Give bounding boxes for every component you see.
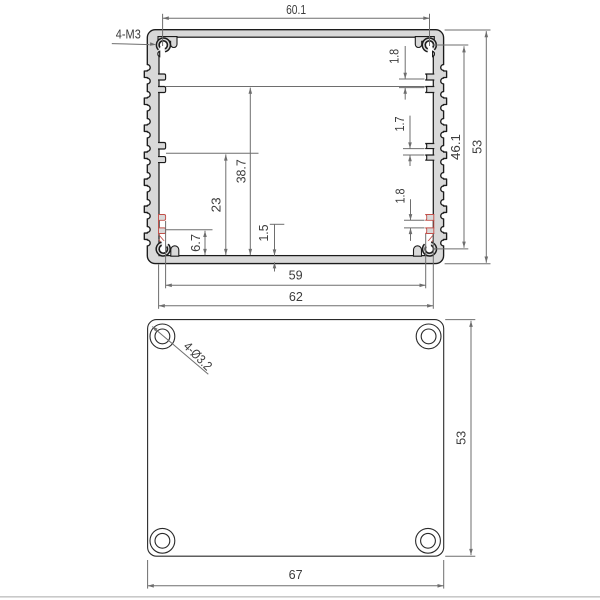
svg-text:1.8: 1.8 bbox=[393, 189, 408, 204]
svg-text:6.7: 6.7 bbox=[188, 234, 203, 252]
svg-text:46.1: 46.1 bbox=[448, 134, 463, 160]
svg-text:38.7: 38.7 bbox=[233, 159, 248, 183]
svg-text:1.7: 1.7 bbox=[392, 117, 407, 132]
svg-text:4-M3: 4-M3 bbox=[116, 27, 141, 42]
svg-text:53: 53 bbox=[454, 431, 469, 445]
svg-text:1.5: 1.5 bbox=[256, 225, 271, 242]
svg-text:23: 23 bbox=[209, 197, 224, 212]
svg-text:62: 62 bbox=[289, 289, 303, 304]
svg-text:67: 67 bbox=[289, 567, 303, 582]
svg-text:59: 59 bbox=[289, 268, 303, 283]
svg-text:1.8: 1.8 bbox=[387, 49, 402, 64]
svg-text:60.1: 60.1 bbox=[286, 2, 306, 17]
svg-text:53: 53 bbox=[470, 140, 485, 154]
